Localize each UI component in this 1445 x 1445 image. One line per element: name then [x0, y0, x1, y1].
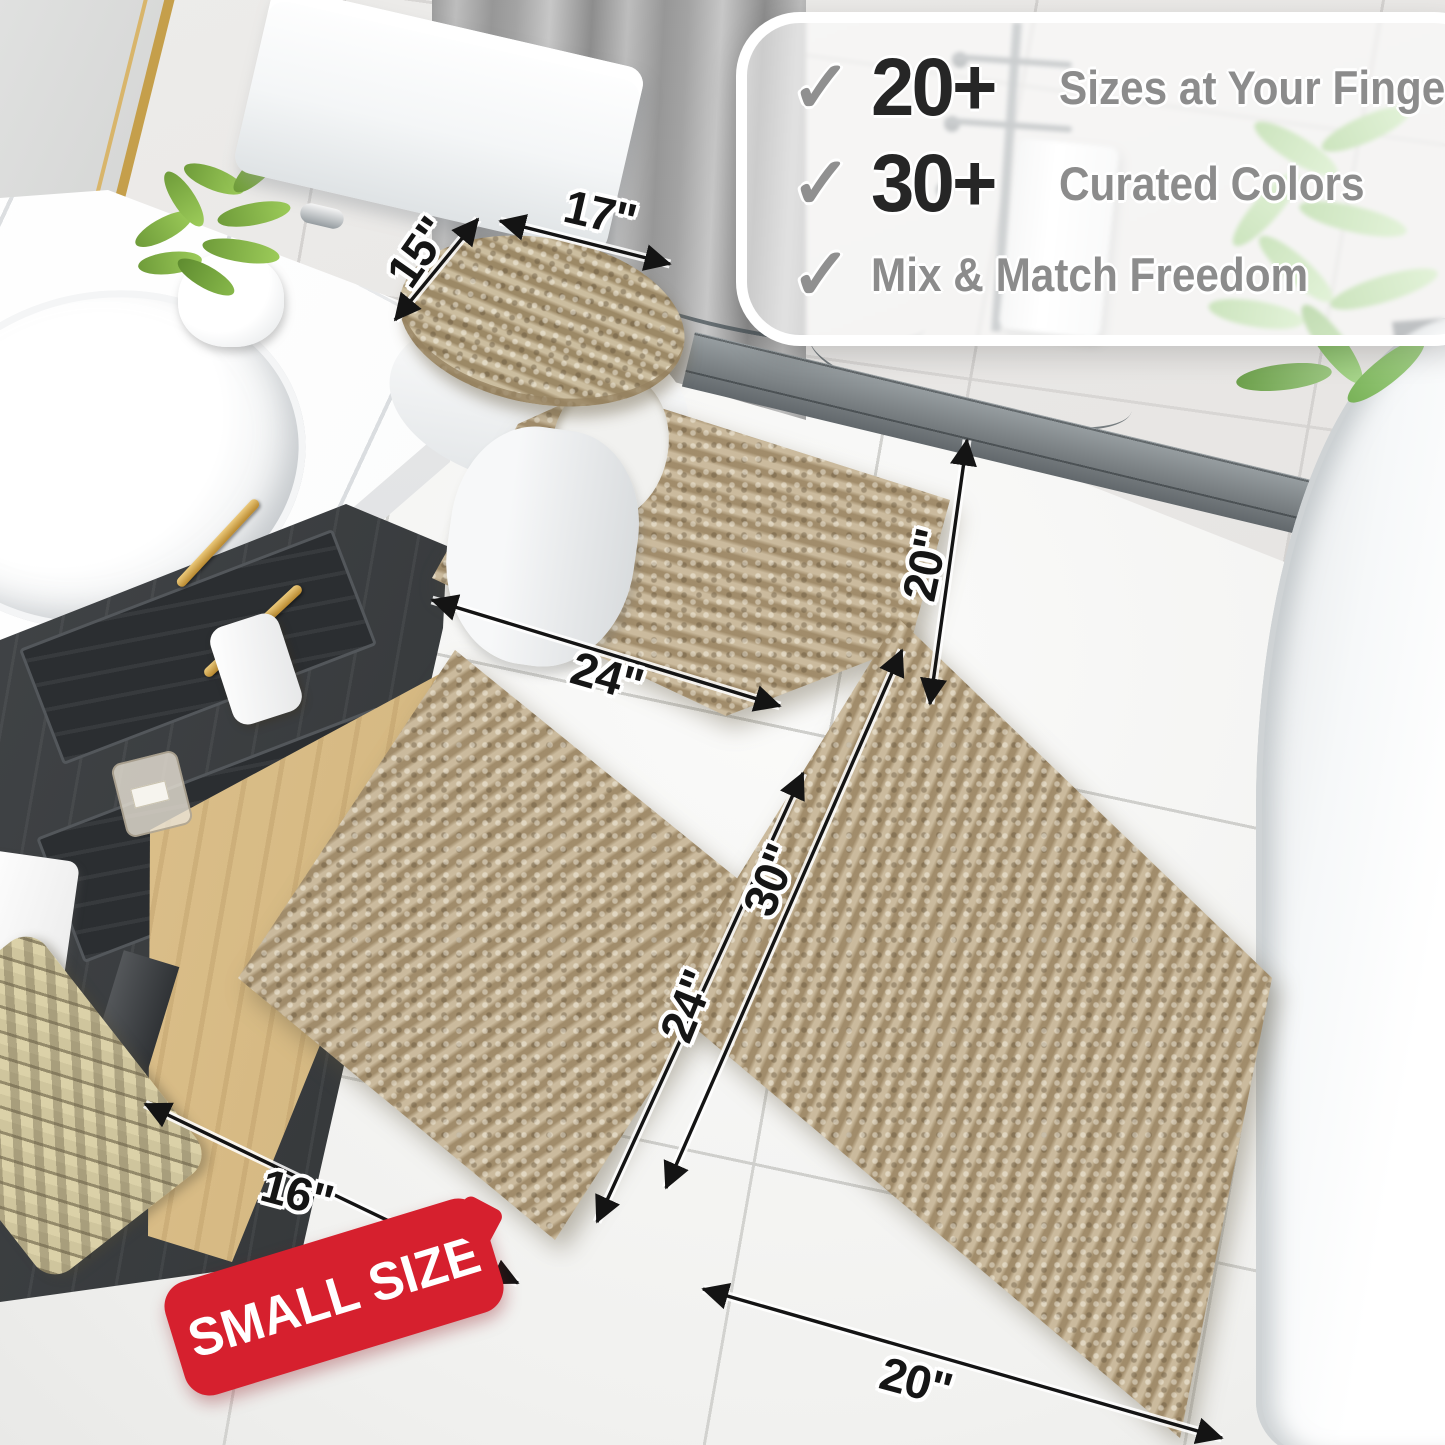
checkmark-icon: ✓ [791, 239, 851, 311]
bathroom-product-scene: ✓ 20+ Sizes at Your Fingertips ✓ 30+ Cur… [0, 0, 1445, 1445]
callout-label: Sizes at Your Fingertips [1059, 63, 1445, 112]
feature-callout-box: ✓ 20+ Sizes at Your Fingertips ✓ 30+ Cur… [736, 12, 1445, 346]
checkmark-icon: ✓ [791, 52, 851, 124]
callout-row: ✓ 20+ Sizes at Your Fingertips [791, 47, 1445, 129]
checkmark-icon: ✓ [791, 148, 851, 220]
callout-stat: 20+ [871, 47, 1031, 129]
callout-label: Curated Colors [1059, 159, 1365, 208]
callout-label: Mix & Match Freedom [871, 250, 1308, 299]
callout-stat: 30+ [871, 143, 1031, 225]
callout-row: ✓ 30+ Curated Colors [791, 143, 1445, 225]
callout-row: ✓ Mix & Match Freedom [791, 239, 1445, 311]
leaf-icon [1235, 357, 1334, 396]
